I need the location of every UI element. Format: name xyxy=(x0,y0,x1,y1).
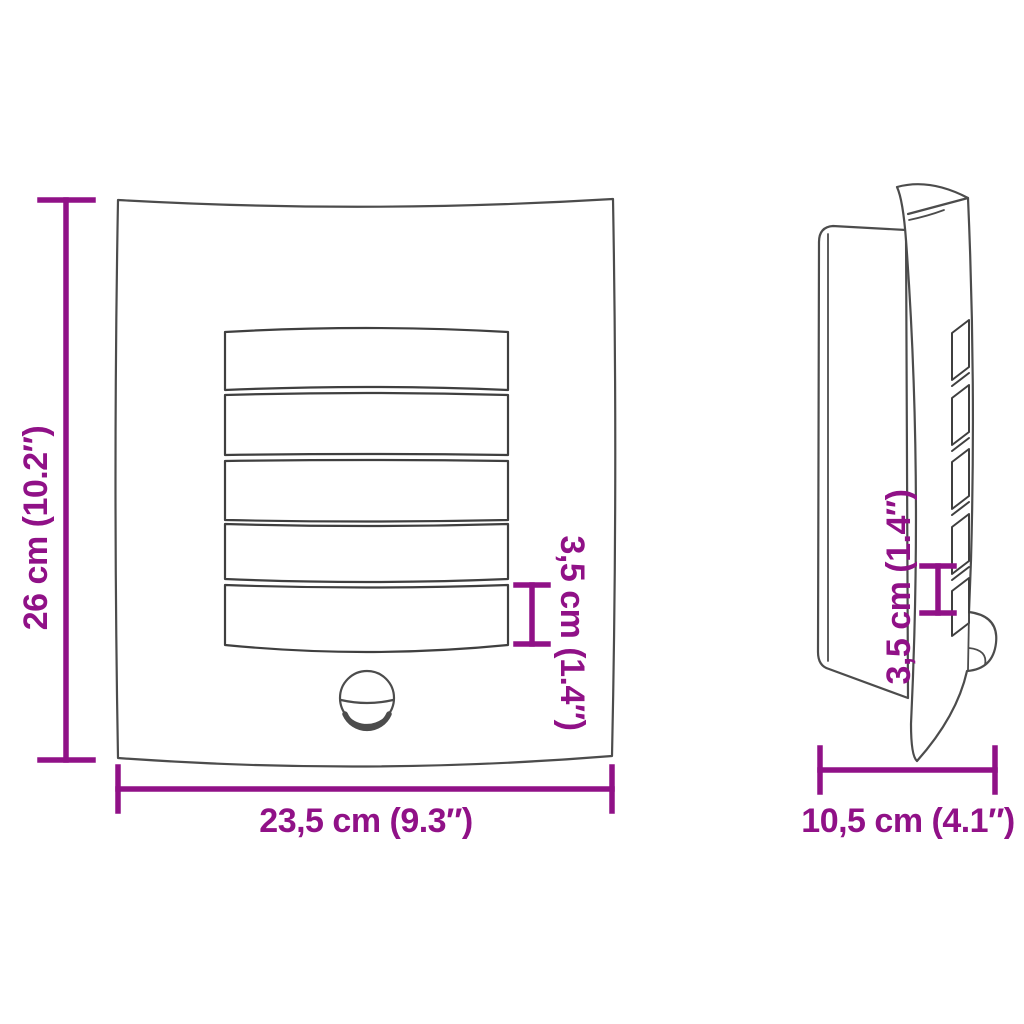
louver-dimension-label-side: 3,5 cm (1.4″) xyxy=(880,490,918,685)
louver-slat xyxy=(225,524,508,582)
louver-slat xyxy=(225,393,508,455)
height-dimension-label: 26 cm (10.2″) xyxy=(17,426,55,630)
louver-slat xyxy=(225,328,508,390)
louver-slat xyxy=(225,460,508,522)
sensor-bump-flat-edge xyxy=(968,614,969,670)
depth-dimension-label: 10,5 cm (4.1″) xyxy=(801,802,1014,840)
side-louvers xyxy=(952,320,969,636)
dimension-diagram: 26 cm (10.2″) 23,5 cm (9.3″) 3,5 cm (1.4… xyxy=(0,0,1024,1024)
louver-dimension-label-front: 3,5 cm (1.4″) xyxy=(553,536,591,731)
front-view xyxy=(116,199,616,767)
motion-sensor xyxy=(340,671,394,728)
width-dimension-label: 23,5 cm (9.3″) xyxy=(259,802,472,840)
louver-slat xyxy=(225,585,508,652)
depth-dimension-line xyxy=(820,748,995,792)
diagram-canvas: 26 cm (10.2″) 23,5 cm (9.3″) 3,5 cm (1.4… xyxy=(0,0,1024,1024)
